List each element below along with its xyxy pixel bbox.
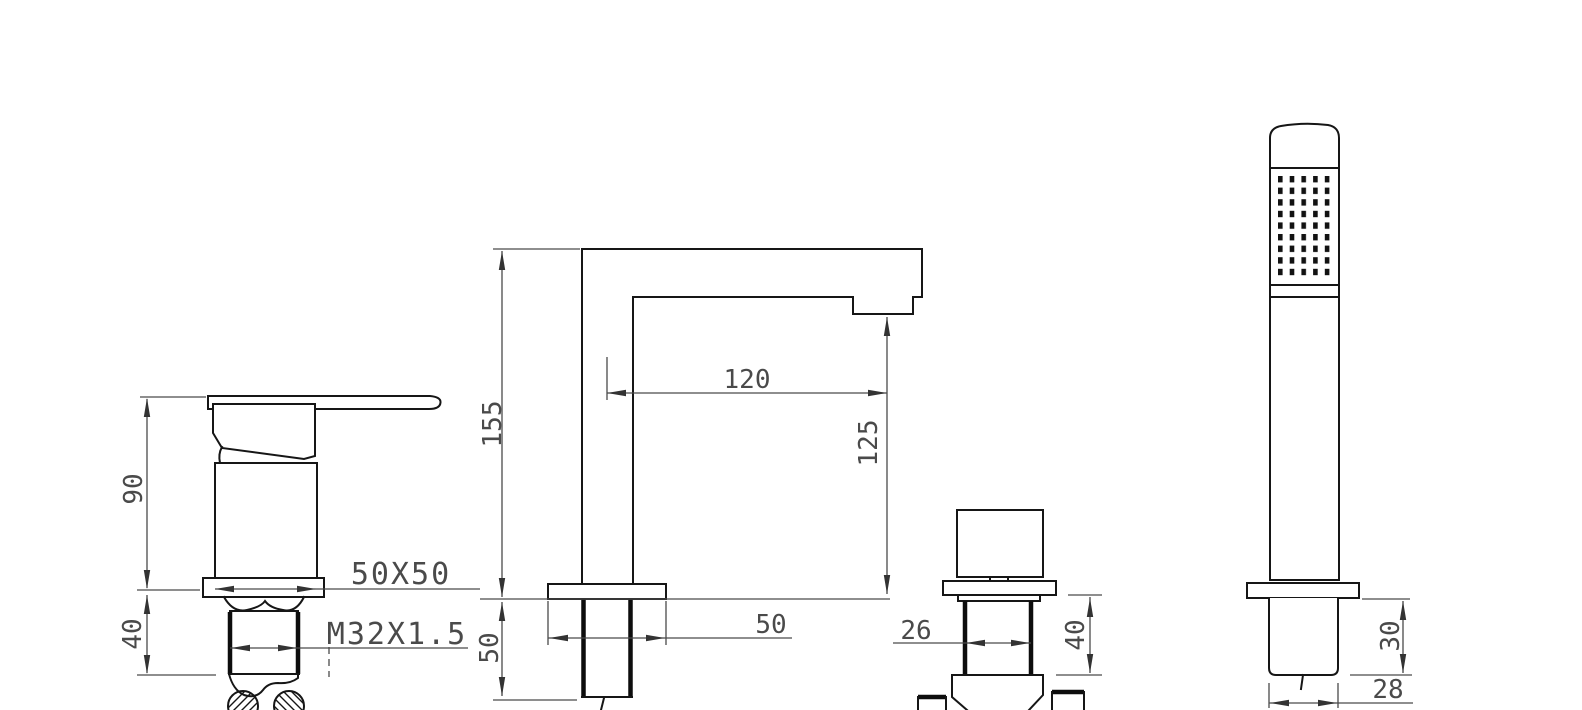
- spout-flange: [548, 584, 666, 599]
- drawing-sheet: 90 40 50X50 M32X1.5 155 50 120 125 50 26…: [0, 0, 1582, 710]
- mixer-hex-nut: [224, 597, 304, 611]
- spout-outline: [582, 249, 922, 584]
- diverter-step: [958, 595, 1040, 601]
- mixer-handle-base: [213, 404, 315, 459]
- dim-label-spout-outlet-height: 125: [854, 420, 884, 467]
- dim-label-mixer-thread-length: 40: [118, 618, 148, 649]
- dim-label-spout-reach: 120: [724, 365, 771, 395]
- mixer-hose-section-left: [228, 691, 258, 710]
- diverter-flange: [943, 581, 1056, 595]
- dim-label-spout-height: 155: [478, 401, 508, 448]
- mixer-handle-base-notch: [219, 447, 222, 463]
- dim-label-mixer-height: 90: [119, 473, 149, 504]
- dim-label-spout-base-width: 50: [755, 610, 786, 640]
- diverter-port-tops: [918, 692, 1084, 697]
- mixer-body: [215, 463, 317, 578]
- spout-shank-bottom: [582, 697, 632, 710]
- hand-shower-flange: [1247, 583, 1359, 598]
- spout-front-view: 155 50 120 125 50: [475, 249, 922, 710]
- diverter-front-view: 26 40: [893, 510, 1102, 710]
- diverter-knob: [957, 510, 1043, 577]
- dim-label-mixer-base-size: 50X50: [351, 557, 451, 592]
- technical-drawing-canvas: 90 40 50X50 M32X1.5 155 50 120 125 50 26…: [0, 0, 1582, 710]
- diverter-body: [965, 601, 1031, 674]
- spout-dimension-lines: [480, 249, 890, 700]
- dim-label-diverter-body-width: 26: [900, 616, 931, 646]
- diverter-port-sides: [918, 692, 1084, 710]
- mixer-thread-shank: [230, 612, 298, 674]
- dim-label-mixer-thread-spec: M32X1.5: [327, 617, 467, 652]
- hand-shower-spray-face: [1278, 176, 1330, 276]
- hand-shower-hose-tick: [1301, 675, 1303, 689]
- dim-label-shower-shank-length: 30: [1376, 620, 1406, 651]
- mixer-front-view: 90 40 50X50 M32X1.5: [118, 396, 480, 710]
- diverter-base: [952, 675, 1043, 710]
- dim-label-diverter-shank-length: 40: [1061, 619, 1091, 650]
- hand-shower-shank: [1269, 598, 1338, 675]
- mixer-hose-section-right: [274, 691, 304, 710]
- dim-label-spout-shank-length: 50: [475, 632, 505, 663]
- dim-label-shower-shank-width: 28: [1372, 675, 1403, 705]
- hand-shower-front-view: 30 28: [1247, 124, 1413, 708]
- spout-shank: [584, 599, 631, 697]
- spout-dimension-arrows: [499, 251, 890, 696]
